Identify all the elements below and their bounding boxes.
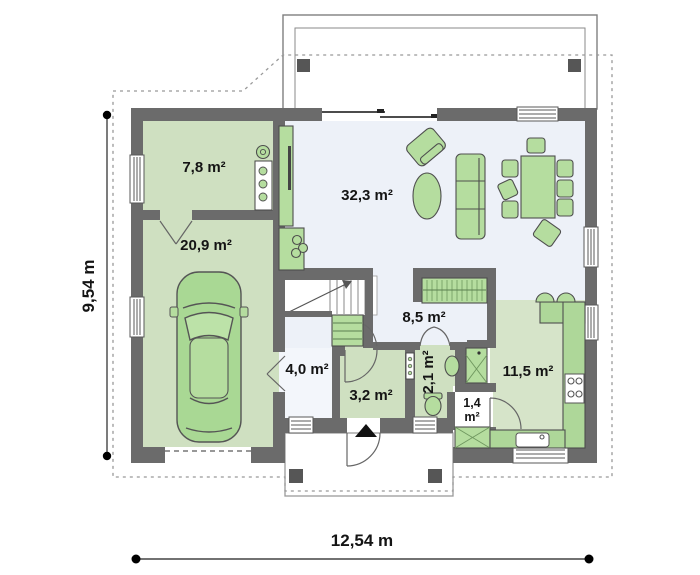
window-garage-left [130, 297, 144, 337]
boiler [257, 146, 270, 159]
floor-plan-canvas: 7,8 m² 20,9 m² 32,3 m² 8,5 m² 4,0 m² 3,2… [0, 0, 700, 575]
dimension-width: 12,54 m [132, 531, 594, 564]
height-dimension-label: 9,54 m [79, 260, 98, 313]
width-dimension-label: 12,54 m [331, 531, 393, 550]
car-mirror-left [170, 307, 178, 317]
label-bathroom-area: 3,2 m² [349, 387, 392, 404]
washer-cabinet [466, 348, 487, 383]
label-vestibule-area: 4,0 m² [285, 361, 328, 378]
window-living-right [584, 227, 598, 267]
terrace [283, 15, 597, 109]
pantry-shelf-cabinet [455, 427, 490, 448]
label-hall-area: 8,5 m² [402, 309, 445, 326]
washbasin [445, 356, 459, 376]
entrance-arrow [355, 424, 377, 437]
label-pantry-area-line1: 1,4 [463, 396, 480, 410]
window-porch-left [289, 417, 313, 433]
dining-chair [557, 160, 573, 177]
porch-post-right [428, 469, 442, 483]
sofa [456, 154, 485, 239]
dining-chair [557, 180, 573, 197]
dining-chair [557, 199, 573, 216]
coffee-table [413, 173, 441, 219]
dining-chair [502, 160, 518, 177]
car [170, 272, 248, 442]
kitchen-sink [516, 433, 549, 447]
toilet [425, 397, 441, 416]
window-porch-right [413, 417, 437, 433]
label-wc-area: 2,1 m² [420, 350, 437, 393]
understairs-cabinet [332, 315, 363, 346]
label-utility-area: 7,8 m² [182, 159, 225, 176]
label-kitchen-area: 11,5 m² [503, 363, 554, 380]
wardrobe [422, 278, 487, 303]
dimension-height: 9,54 m [79, 111, 111, 460]
garage-door [165, 447, 251, 463]
wc-radiator [406, 353, 414, 379]
tv [288, 146, 291, 190]
window-utility-left [130, 155, 144, 203]
terrace-sliding-door [322, 108, 437, 121]
label-living-area: 32,3 m² [341, 187, 393, 204]
label-pantry-area-line2: m² [464, 410, 479, 424]
entry-porch [285, 433, 453, 496]
terrace-post-right [568, 59, 581, 72]
terrace-post-left [297, 59, 310, 72]
window-living-top [517, 107, 558, 121]
porch-post-left [289, 469, 303, 483]
terrace-inner [295, 28, 585, 109]
window-kitchen-right [584, 305, 598, 340]
dining-table [521, 156, 555, 218]
dining-chair [527, 138, 545, 153]
porch-slab [285, 433, 453, 496]
car-mirror-right [240, 307, 248, 317]
label-garage-area: 20,9 m² [180, 237, 232, 254]
dining-chair [502, 201, 518, 218]
floor-plan-page: 7,8 m² 20,9 m² 32,3 m² 8,5 m² 4,0 m² 3,2… [0, 0, 700, 575]
hob [565, 374, 584, 403]
